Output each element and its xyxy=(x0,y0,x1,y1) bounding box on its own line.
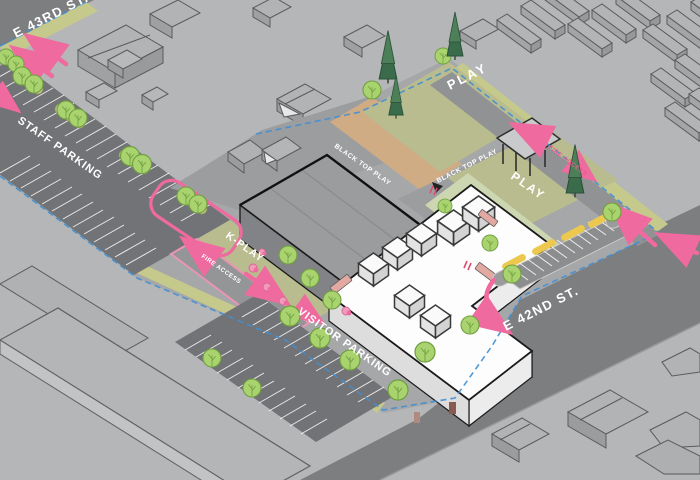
site-plan: E 43RD ST. E 42ND ST. STAFF PARKING VISI… xyxy=(0,0,700,480)
site-plan-canvas: { "diagram": { "kind": "axonometric-site… xyxy=(0,0,700,480)
door xyxy=(449,402,456,414)
door xyxy=(414,412,420,423)
